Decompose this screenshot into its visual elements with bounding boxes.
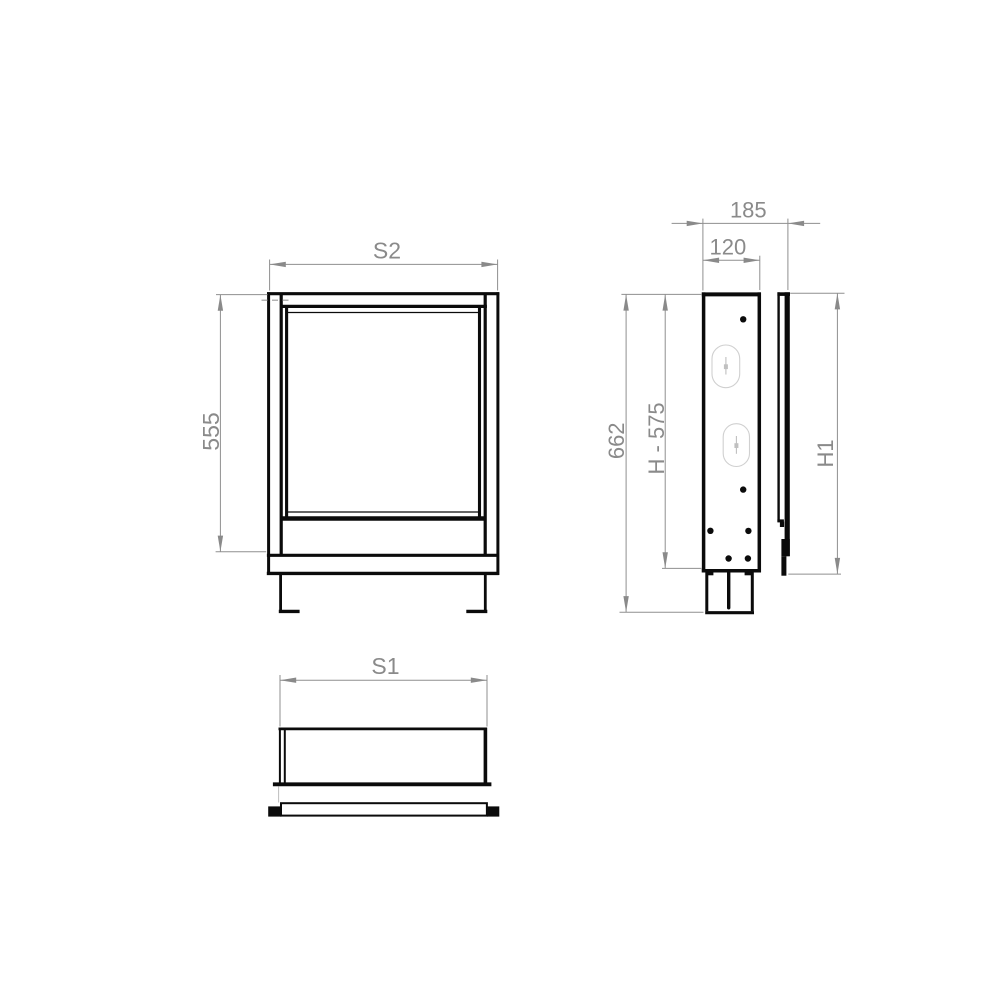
svg-text:S1: S1 <box>371 653 399 679</box>
svg-text:662: 662 <box>604 422 629 459</box>
svg-text:H1: H1 <box>813 439 838 467</box>
svg-text:185: 185 <box>730 198 767 223</box>
svg-text:555: 555 <box>198 412 224 450</box>
svg-text:H - 575: H - 575 <box>644 402 669 474</box>
svg-text:S2: S2 <box>373 238 401 264</box>
svg-text:120: 120 <box>710 235 747 260</box>
